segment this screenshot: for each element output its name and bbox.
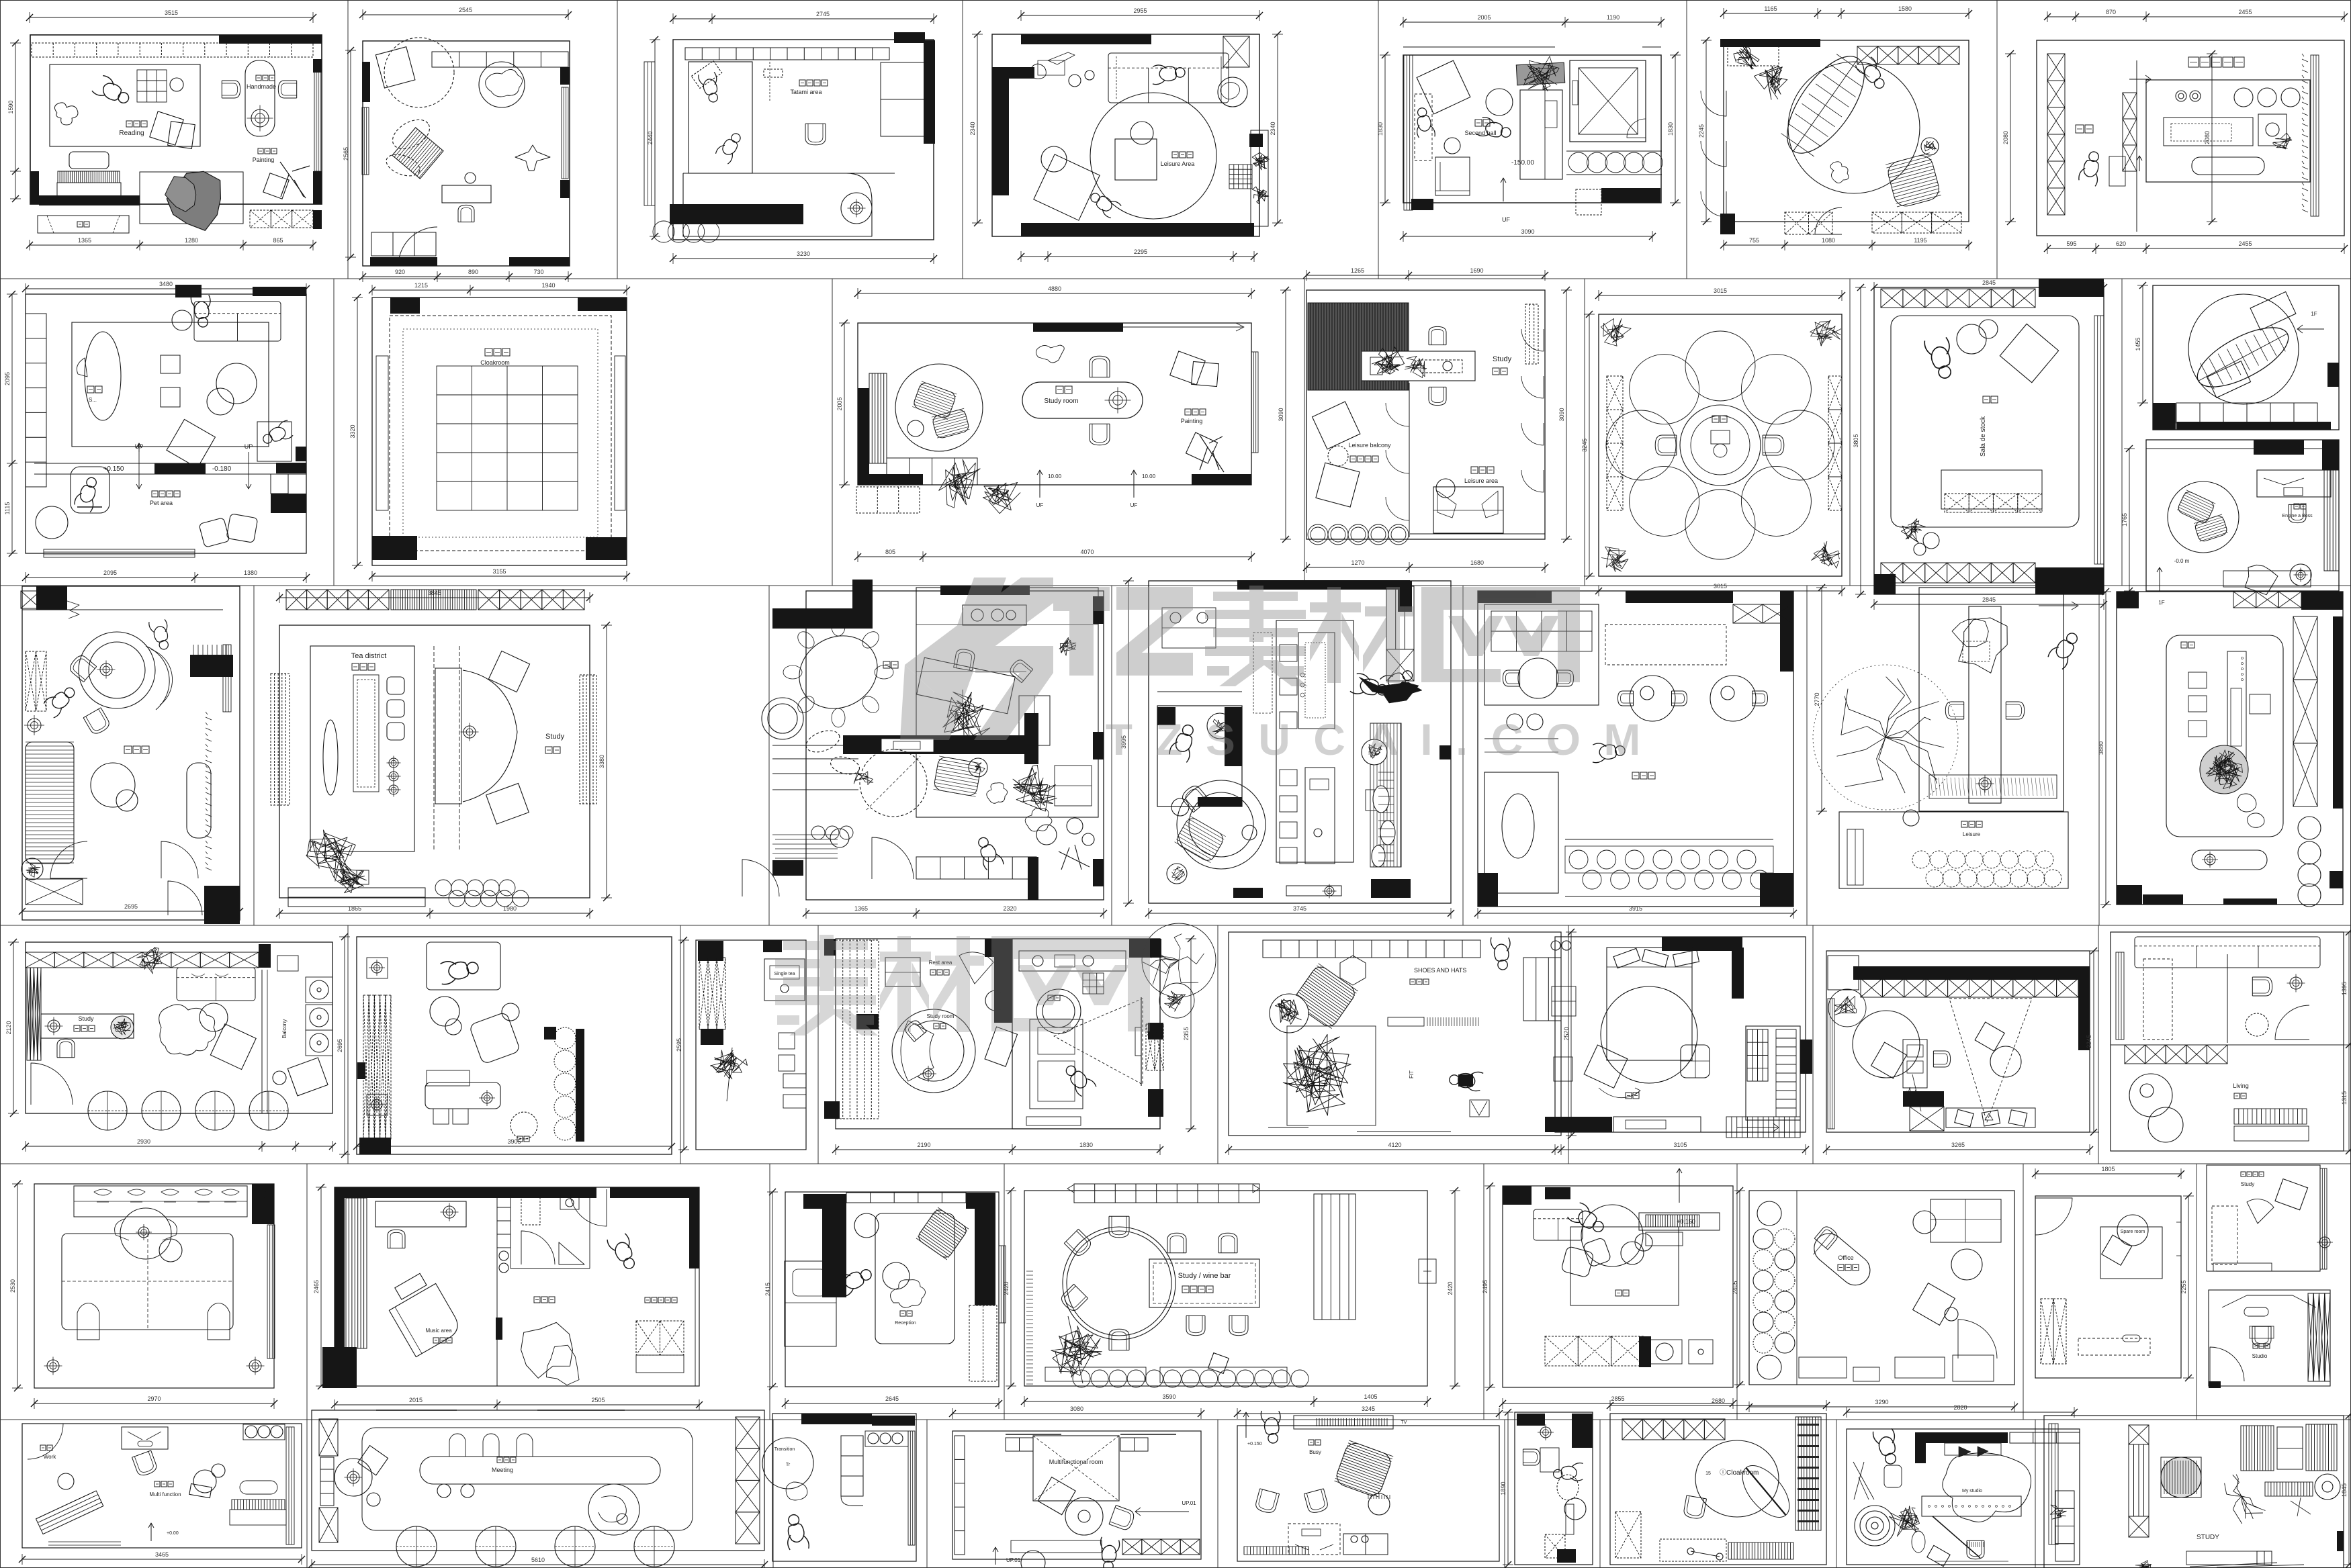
svg-text:1580: 1580 [1898,5,1912,12]
svg-text:5610: 5610 [531,1557,545,1563]
svg-text:Leisure Area: Leisure Area [1161,160,1195,167]
svg-text:2465: 2465 [313,1280,320,1293]
svg-text:Study room: Study room [927,1013,955,1019]
svg-text:Work: Work [44,1454,57,1460]
svg-text:3265: 3265 [1951,1142,1965,1148]
svg-text:Busy: Busy [1309,1449,1321,1455]
svg-text:UF: UF [1036,502,1044,508]
svg-text:1365: 1365 [78,237,91,244]
svg-text:STUDY: STUDY [2197,1534,2219,1541]
svg-text:3845: 3845 [428,590,441,596]
svg-text:T Z S U C A I . C O M: T Z S U C A I . C O M [1106,714,1646,764]
svg-text:2495: 2495 [1482,1280,1489,1293]
svg-text:4880: 4880 [1048,285,1061,292]
svg-text:1805: 1805 [2101,1166,2115,1172]
svg-text:2845: 2845 [1982,279,1996,286]
svg-text:Study / wine bar: Study / wine bar [1178,1272,1231,1280]
svg-text:Transition: Transition [774,1447,795,1452]
svg-text:Multifunctional room: Multifunctional room [1049,1459,1104,1465]
svg-text:2120: 2120 [5,1021,12,1034]
svg-text:-0.180: -0.180 [212,465,232,473]
svg-text:3915: 3915 [1629,905,1642,912]
svg-text:3320: 3320 [349,424,356,438]
svg-text:4070: 4070 [1080,549,1094,555]
svg-text:Music area: Music area [425,1328,452,1334]
svg-text:UP.01: UP.01 [1006,1557,1021,1563]
svg-text:Leisure area: Leisure area [1464,477,1498,484]
svg-text:TV: TV [1401,1420,1407,1425]
svg-text:595: 595 [2066,240,2076,247]
svg-text:2015: 2015 [409,1397,423,1403]
svg-text:3745: 3745 [1293,905,1306,912]
svg-text:2955: 2955 [1133,7,1147,14]
svg-text:2970: 2970 [147,1395,161,1402]
svg-text:Study: Study [78,1015,94,1022]
svg-text:2340: 2340 [1270,122,1276,135]
svg-text:2255: 2255 [2180,1280,2187,1293]
svg-text:1690: 1690 [1470,267,1483,274]
svg-text:1455: 1455 [2135,337,2141,351]
svg-text:Engine a Boss: Engine a Boss [2282,514,2313,518]
svg-text:3015: 3015 [1714,287,1727,294]
svg-text:2415: 2415 [764,1283,771,1296]
svg-text:3380: 3380 [598,755,605,768]
svg-text:3480: 3480 [159,281,173,287]
svg-text:Study room: Study room [1044,398,1078,405]
svg-text:2745: 2745 [816,11,830,17]
svg-text:1265: 1265 [1351,267,1364,274]
svg-text:2245: 2245 [2086,1035,2092,1048]
svg-text:+0.150: +0.150 [1247,1442,1262,1446]
svg-text:2695: 2695 [124,903,138,910]
svg-text:2295: 2295 [1134,248,1147,255]
svg-text:10.00: 10.00 [1048,473,1062,479]
svg-text:Balcony: Balcony [281,1019,287,1038]
svg-text:1280: 1280 [185,237,198,244]
svg-text:Study: Study [1493,355,1512,363]
svg-text:2565: 2565 [343,147,349,160]
svg-text:1405: 1405 [1364,1393,1377,1400]
svg-text:1165: 1165 [1764,5,1777,12]
svg-text:2320: 2320 [1003,905,1016,912]
svg-text:730: 730 [533,269,543,275]
svg-text:3245: 3245 [1362,1405,1375,1412]
svg-text:Spare room: Spare room [2121,1230,2145,1234]
svg-text:UF: UF [1502,216,1510,223]
svg-text:3465: 3465 [155,1551,169,1558]
svg-text:920: 920 [395,269,405,275]
svg-text:2420: 2420 [1447,1281,1454,1295]
svg-text:1830: 1830 [1667,122,1674,136]
svg-text:1765: 1765 [2121,513,2128,526]
svg-text:3090: 3090 [1558,408,1565,421]
svg-text:3155: 3155 [492,568,506,575]
svg-text:2190: 2190 [917,1142,930,1148]
svg-text:-0.0 m: -0.0 m [2174,558,2190,564]
svg-text:2095: 2095 [4,372,11,385]
svg-text:Leisure balcony: Leisure balcony [1348,442,1391,449]
svg-text:Cloakroom: Cloakroom [480,359,510,366]
svg-text:2595: 2595 [676,1038,682,1052]
svg-text:2820: 2820 [1953,1404,1967,1411]
svg-text:2505: 2505 [591,1397,605,1403]
svg-text:2080: 2080 [2002,131,2009,144]
svg-text:-150.00: -150.00 [1511,159,1534,167]
svg-text:2520: 2520 [1563,1027,1570,1040]
svg-text:Study: Study [2241,1181,2254,1187]
svg-text:890: 890 [468,269,478,275]
svg-text:1365: 1365 [854,905,868,912]
svg-text:1190: 1190 [1607,14,1620,21]
svg-text:1940: 1940 [541,282,555,289]
svg-text:UF: UF [1130,502,1138,508]
svg-text:2680: 2680 [1712,1397,1725,1404]
svg-text:Painting: Painting [253,156,275,163]
svg-text:UP.01: UP.01 [1182,1500,1196,1506]
svg-text:2645: 2645 [885,1395,899,1402]
svg-text:UP: UP [135,443,144,450]
svg-text:3080: 3080 [1070,1405,1083,1412]
svg-text:2545: 2545 [459,7,472,13]
svg-text:1590: 1590 [7,100,14,113]
svg-text:Reception: Reception [895,1321,916,1326]
svg-text:S...: S... [89,397,97,403]
svg-text:3880: 3880 [2098,741,2104,755]
svg-text:870: 870 [2106,9,2116,15]
svg-text:1865: 1865 [348,905,361,912]
svg-text:1215: 1215 [414,282,428,289]
svg-text:2080: 2080 [2204,131,2211,144]
svg-text:Tea district: Tea district [351,652,387,660]
svg-text:Pet area: Pet area [150,500,173,506]
svg-text:2095: 2095 [103,569,117,576]
svg-text:2455: 2455 [2238,240,2252,247]
svg-text:Leisure: Leisure [1963,831,1981,837]
svg-text:My studio: My studio [1962,1489,1982,1493]
svg-text:3015: 3015 [1714,583,1727,590]
svg-text:3905: 3905 [507,1138,521,1145]
svg-text:Handmade: Handmade [247,83,276,90]
svg-text:1115: 1115 [4,502,11,515]
svg-text:2530: 2530 [9,1279,16,1293]
svg-text:2770: 2770 [1814,692,1820,706]
svg-text:1395: 1395 [2341,982,2348,995]
svg-text:3105: 3105 [1673,1142,1687,1148]
svg-text:SHOES AND HATS: SHOES AND HATS [1414,967,1466,974]
svg-text:Living: Living [2233,1082,2249,1089]
svg-text:Studio: Studio [2252,1353,2268,1359]
svg-text:2405: 2405 [1732,1281,1738,1294]
svg-text:4120: 4120 [1388,1142,1401,1148]
svg-text:2005: 2005 [1477,14,1491,21]
svg-text:2355: 2355 [1183,1027,1190,1040]
svg-text:Tr: Tr [786,1463,791,1467]
svg-text:3515: 3515 [165,9,178,16]
svg-text:Second hall: Second hall [1464,130,1496,136]
svg-text:1980: 1980 [503,905,517,912]
svg-text:Meeting: Meeting [492,1467,513,1473]
svg-text:2695: 2695 [337,1039,343,1052]
svg-text:2930: 2930 [137,1138,150,1145]
svg-text:1195: 1195 [1914,237,1926,244]
svg-text:1830: 1830 [1377,122,1384,136]
svg-text:2340: 2340 [969,122,976,135]
svg-text:1845: 1845 [2341,1483,2348,1497]
svg-text:+0.150: +0.150 [1677,1218,1695,1225]
svg-text:2005: 2005 [836,397,843,410]
svg-text:3590: 3590 [1162,1393,1175,1400]
svg-text:Tatami area: Tatami area [790,89,822,95]
svg-text:3805: 3805 [1853,434,1859,447]
svg-text:10.00: 10.00 [1142,473,1156,479]
svg-text:Multi function: Multi function [149,1491,181,1497]
svg-text:UP: UP [245,443,253,450]
svg-text:Sala de stock: Sala de stock [1980,416,1987,457]
svg-text:3290: 3290 [1875,1399,1888,1405]
svg-text:1830: 1830 [1079,1142,1093,1148]
svg-text:2440: 2440 [647,131,654,144]
svg-text:620: 620 [2116,240,2126,247]
svg-text:15: 15 [1705,1471,1711,1476]
svg-text:Painting: Painting [1181,418,1203,424]
svg-text:2455: 2455 [2238,9,2252,15]
svg-text:2855: 2855 [1611,1395,1624,1402]
svg-text:2845: 2845 [1982,596,1996,603]
svg-text:755: 755 [1749,237,1759,244]
svg-text:805: 805 [885,549,895,555]
svg-text:3090: 3090 [1521,228,1534,235]
svg-text:1890: 1890 [1500,1481,1507,1495]
svg-text:1F: 1F [2158,600,2164,606]
svg-text:1315: 1315 [2341,1091,2348,1105]
svg-text:2245: 2245 [1698,124,1705,138]
svg-text:Office: Office [1838,1254,1853,1261]
svg-text:1F: 1F [2311,311,2317,317]
svg-text:Reading: Reading [119,130,144,137]
svg-text:+0.00: +0.00 [167,1531,179,1536]
svg-text:3090: 3090 [1278,408,1284,421]
svg-text:FIT: FIT [1409,1070,1415,1078]
svg-text:865: 865 [273,237,283,244]
svg-text:2420: 2420 [1003,1281,1010,1295]
svg-text:3245: 3245 [1581,439,1588,452]
svg-text:1270: 1270 [1351,559,1364,566]
svg-text:1380: 1380 [244,569,257,576]
svg-text:1680: 1680 [1470,559,1484,566]
svg-text:3230: 3230 [797,250,810,257]
svg-text:1080: 1080 [1822,237,1835,244]
svg-text:Single tea: Single tea [774,972,795,976]
svg-text:Study: Study [545,733,565,741]
